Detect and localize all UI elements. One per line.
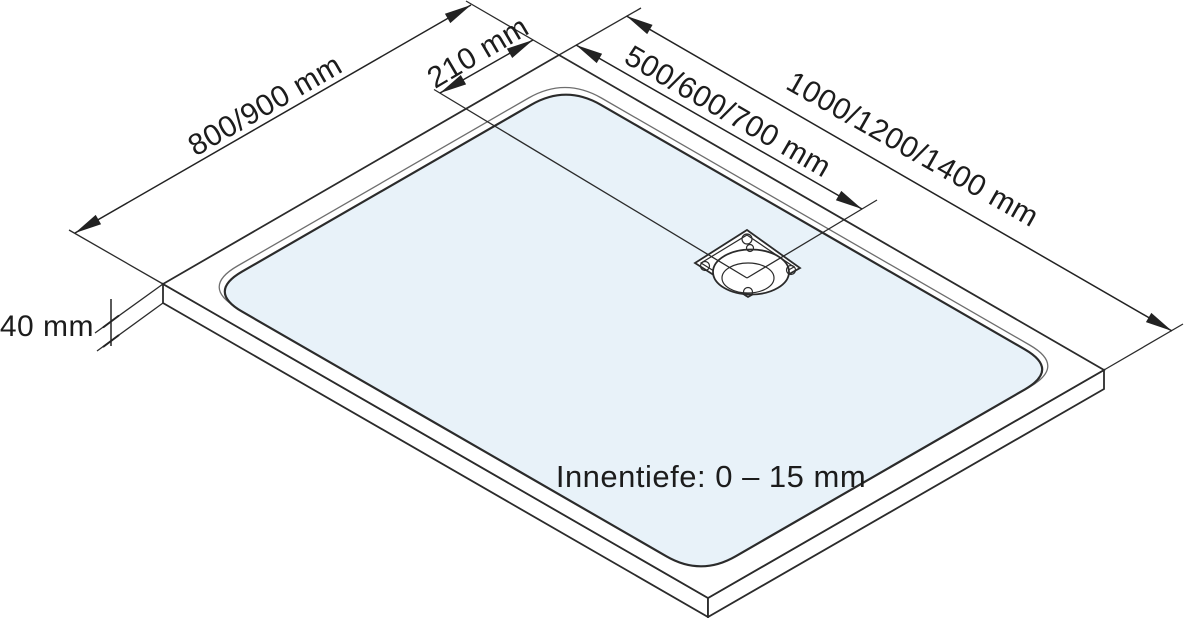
dim-label-height: 40 mm <box>0 310 94 343</box>
dimension-height: 40 mm <box>0 284 163 351</box>
ext-left-corner <box>69 230 163 284</box>
dim-label-depth: 800/900 mm <box>183 48 348 162</box>
inner-depth-note: Innentiefe: 0 – 15 mm <box>556 459 866 494</box>
shower-tray-technical-drawing: 800/900 mm 210 mm 500/600/700 mm 1000/12… <box>0 0 1200 618</box>
diagram-svg: 800/900 mm 210 mm 500/600/700 mm 1000/12… <box>0 0 1200 618</box>
ext-top-corner-upright <box>559 8 641 55</box>
